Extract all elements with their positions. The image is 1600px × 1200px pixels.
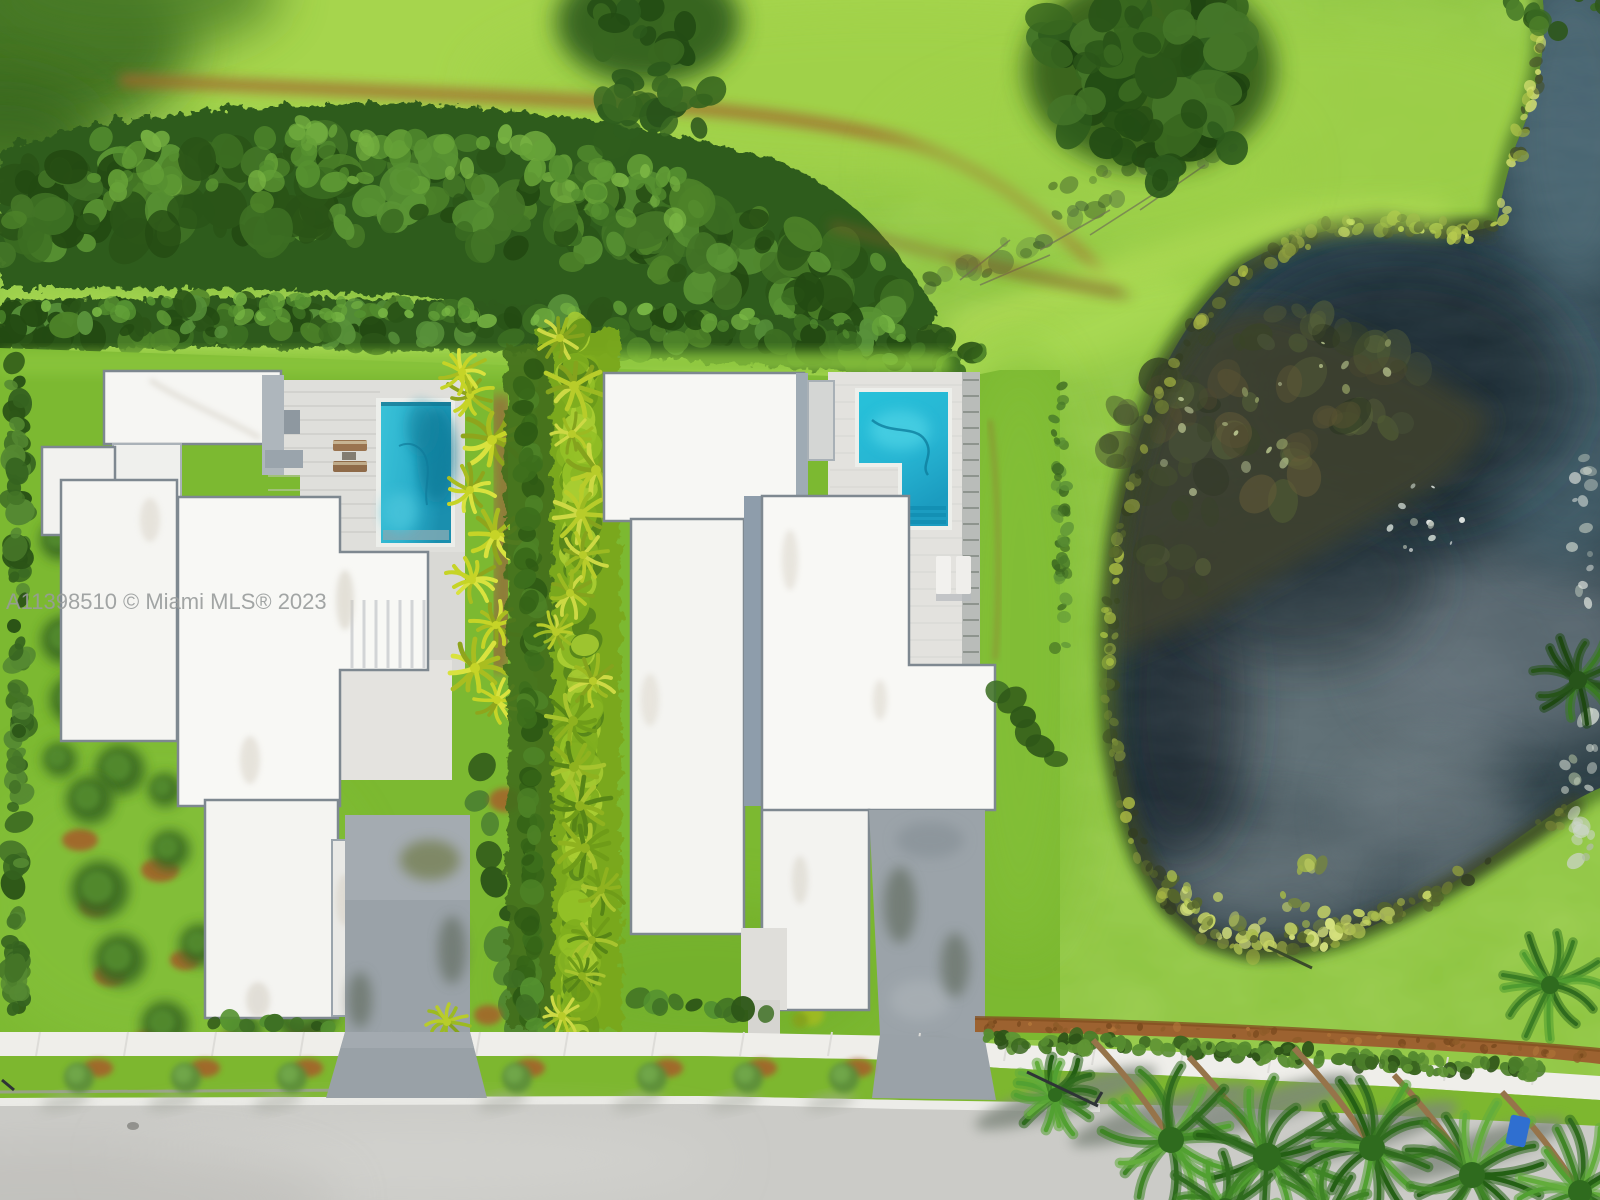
svg-text:A11398510 © Miami MLS® 2023: A11398510 © Miami MLS® 2023	[6, 589, 327, 614]
